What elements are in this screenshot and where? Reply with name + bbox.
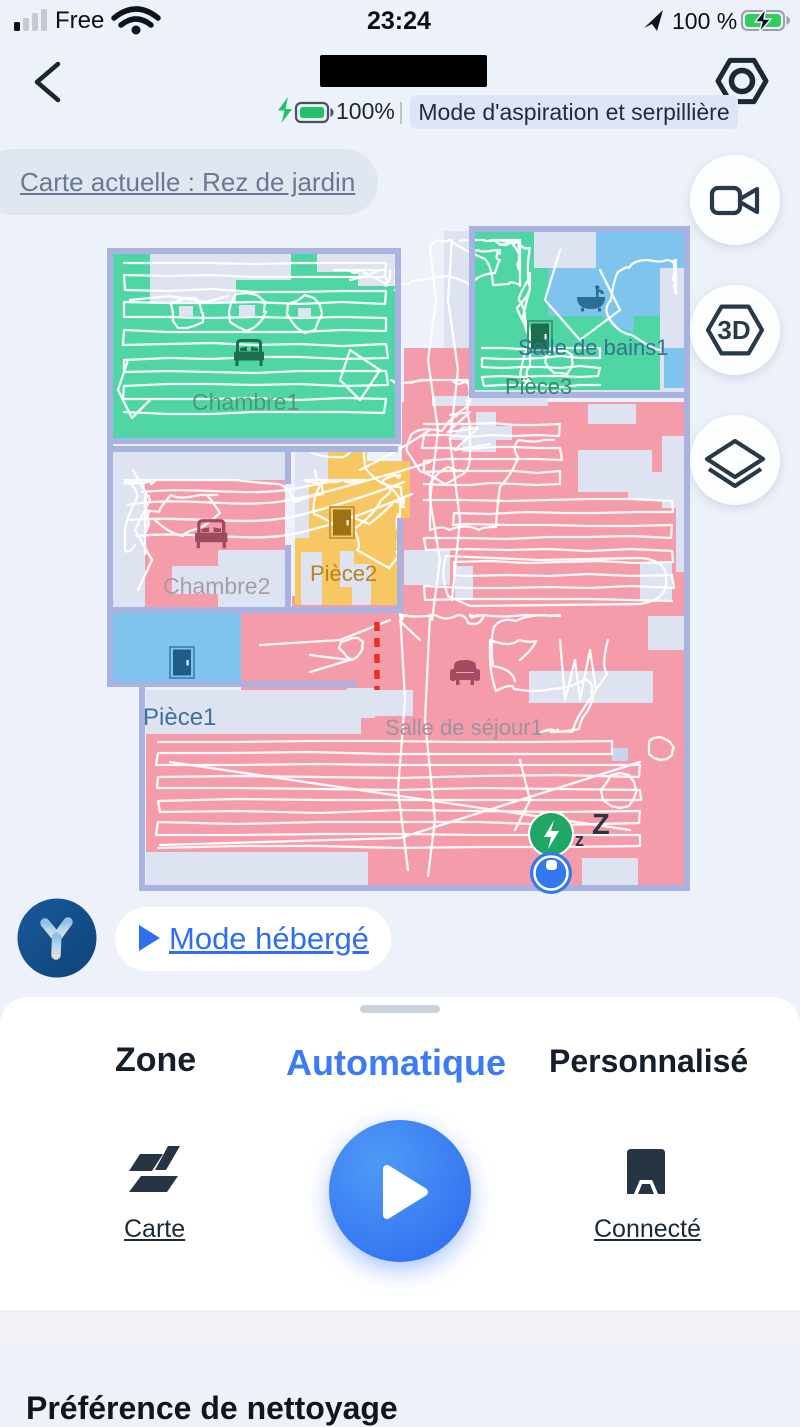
svg-text:Pièce3: Pièce3 xyxy=(505,374,572,399)
svg-text:3D: 3D xyxy=(717,315,750,345)
svg-text:Salle de bains1: Salle de bains1 xyxy=(518,335,668,360)
svg-text:Chambre1: Chambre1 xyxy=(192,389,299,415)
svg-text:Pièce2: Pièce2 xyxy=(310,561,377,586)
svg-text:Z: Z xyxy=(592,809,610,841)
svg-text:Chambre2: Chambre2 xyxy=(163,573,270,599)
svg-text:z: z xyxy=(575,830,584,850)
svg-text:Salle de séjour1: Salle de séjour1 xyxy=(385,715,543,740)
svg-text:Pièce1: Pièce1 xyxy=(143,704,216,731)
